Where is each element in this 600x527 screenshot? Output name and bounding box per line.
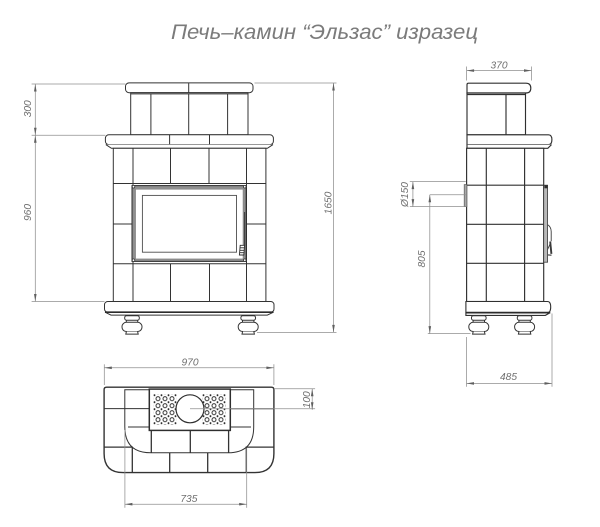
svg-text:Печь–камин “Эльзас” изразец: Печь–камин “Эльзас” изразец: [171, 20, 478, 44]
svg-text:370: 370: [491, 60, 508, 71]
svg-text:735: 735: [180, 494, 197, 505]
svg-text:970: 970: [182, 357, 199, 368]
svg-text:485: 485: [500, 372, 517, 383]
svg-text:Ø150: Ø150: [400, 182, 411, 208]
svg-text:960: 960: [23, 204, 34, 221]
svg-text:805: 805: [417, 250, 428, 267]
svg-text:1650: 1650: [324, 191, 335, 214]
svg-text:300: 300: [23, 100, 34, 117]
svg-text:100: 100: [302, 391, 313, 408]
